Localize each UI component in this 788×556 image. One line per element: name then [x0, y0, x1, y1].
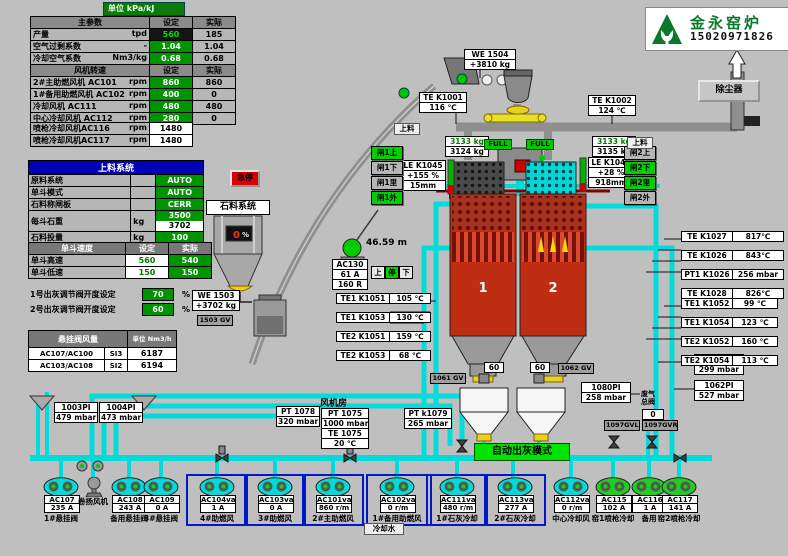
instrument-line: 124 ℃ — [588, 105, 636, 116]
measurement-row: TE2 K1054113 ℃ — [681, 356, 779, 375]
motor-label: 1#石灰冷却 — [424, 513, 490, 524]
param-actual: 0.68 — [193, 53, 236, 65]
flow-table: 悬挂阀风量单位 Nm3/hAC107/AC100SI36187AC103/AC1… — [28, 330, 177, 372]
conveyor — [484, 114, 546, 122]
fan-row: 冷却风机 AC111rpm480480 — [31, 101, 236, 113]
fan-room-label: 风机房 — [320, 396, 347, 409]
param-setpoint[interactable]: 0.68 — [150, 53, 193, 65]
instrument-line: 15mm — [400, 180, 446, 191]
param-setpoint[interactable]: 1.04 — [150, 41, 193, 53]
level-bar-right — [580, 158, 586, 192]
kiln-1-number: 1 — [478, 281, 487, 296]
measurement-tag: TE1 K1054 — [681, 317, 733, 328]
fan-unit: rpm — [129, 101, 147, 110]
instrument-line: PT k1079 — [404, 408, 452, 419]
main-table-title: 主参数 — [31, 17, 150, 29]
valve-setting-value[interactable]: 70 — [142, 288, 174, 301]
instrument-ac130: AC13061 A160 R — [332, 260, 368, 290]
measurement-row: TE2 K1051159 ℃ — [336, 332, 432, 351]
instrument-line: 3133 kg — [445, 136, 489, 147]
kiln-temps-right-b: TE1 K105299 ℃TE1 K1054123 ℃TE2 K1052160 … — [681, 299, 779, 375]
lance-flow-table: 悬挂阀风量单位 Nm3/hAC107/AC100SI36187AC103/AC1… — [28, 330, 177, 372]
valve-setting-unit: % — [182, 305, 190, 314]
param-unit: - — [144, 41, 147, 50]
flow-label: AC103/AC108 — [29, 360, 105, 372]
instrument-gv1503: 1503 GV — [197, 316, 233, 326]
ash-hopper-2 — [517, 374, 565, 441]
measurement-value: 113 ℃ — [732, 355, 778, 366]
feed-setpoint[interactable]: 3500 — [156, 211, 203, 221]
motor-value: 860 r/m — [316, 503, 352, 513]
feed-left-label: 上料 — [394, 123, 420, 135]
gun-fan-row: 喷枪冷却风机AC117rpm1480 — [31, 135, 193, 147]
main-params-table: 主参数设定实际产量tpd560185空气过剩系数-1.041.04冷却空气系数N… — [30, 16, 236, 125]
col-actual: 实际 — [193, 17, 236, 29]
instrument-line: +3810 kg — [464, 59, 516, 70]
instrument-line: TE K1001 — [419, 92, 467, 103]
param-label: 空气过剩系数- — [31, 41, 150, 53]
instrument-gv1061: 1061 GV — [430, 374, 466, 384]
instrument-line: 60 — [484, 362, 504, 373]
feed-label: 单斗模式 — [29, 187, 131, 199]
fan-label: 冷却风机 AC111rpm — [31, 101, 150, 113]
skip-speed-table: 单斗速度设定实际单斗高速560540单斗低速150150 — [28, 242, 212, 279]
feed-system-table: 上料系统原料系统AUTO单斗模式AUTO石料称闸板CERR每斗石重kg35003… — [28, 160, 204, 244]
motor-value: 277 A — [498, 503, 534, 513]
fan-unit: rpm — [129, 89, 147, 98]
param-actual: 185 — [193, 29, 236, 41]
instrument-line: 1000 mbar — [321, 418, 369, 429]
instrument-line: 1097GVR — [642, 420, 678, 431]
stone-bin-level: 0 — [233, 230, 240, 241]
speed-setpoint[interactable]: 150 — [126, 267, 169, 279]
fan-actual: 480 — [193, 101, 236, 113]
param-unit: tpd — [132, 29, 147, 38]
measurement-value: 123 ℃ — [732, 317, 778, 328]
instrument-line: 20 ℃ — [321, 438, 369, 449]
motor-label: 1#悬挂阀 — [28, 513, 94, 524]
fan-actual: 0 — [193, 89, 236, 101]
flow-tag: SI2 — [104, 360, 127, 372]
measurement-row: TE1 K1054123 ℃ — [681, 318, 779, 337]
instrument-te-k1002: TE K1002124 ℃ — [588, 96, 636, 116]
skip-bucket-full-icon — [399, 88, 409, 98]
motor-label: 2#主助燃风 — [300, 513, 366, 524]
estop-button[interactable]: 急停 — [230, 170, 260, 187]
col-set: 设定 — [150, 65, 193, 77]
flow-row: AC107/AC100SI36187 — [29, 348, 177, 360]
instrument-te-k1001: TE K1001116 ℃ — [419, 93, 467, 113]
instrument-weight-left: 3133 kg3124 kg — [445, 137, 489, 157]
fan-setpoint[interactable]: 400 — [150, 89, 193, 101]
logo-triangle-icon — [650, 12, 684, 46]
col-actual: 实际 — [169, 243, 212, 255]
stone-system-label: 石料系统 — [206, 200, 270, 215]
gun-fan-label: 喷枪冷却风机AC116rpm — [31, 123, 150, 135]
instrument-fan-stack: PT 10751000 mbarTE 107520 ℃ — [321, 409, 369, 449]
logo-title: 金永窑炉 — [690, 15, 774, 31]
speed-label: 单斗低速 — [29, 267, 126, 279]
fan-setpoint[interactable]: 480 — [150, 101, 193, 113]
feed-value[interactable]: CERR — [156, 199, 204, 211]
gate-button-gate1-out[interactable]: 闸1外 — [371, 191, 403, 205]
kiln-temps-right-a: TE K1027817℃TE K1026843℃PT1 K1026256 mba… — [681, 232, 785, 308]
valve-setting-unit: % — [182, 290, 190, 299]
feed-value[interactable]: AUTO — [156, 187, 204, 199]
speed-actual: 540 — [169, 255, 212, 267]
instrument-line: 479 mbar — [54, 412, 98, 423]
speed-row: 单斗低速150150 — [29, 267, 212, 279]
fan-table-title: 风机转速 — [31, 65, 150, 77]
gun-fan-row: 喷枪冷却风机AC116rpm1480 — [31, 123, 193, 135]
speed-table-title: 单斗速度 — [29, 243, 126, 255]
feed-right-label: 上料 — [627, 137, 653, 149]
hoist-button-2[interactable]: 下 — [399, 266, 413, 279]
full-right-label: FULL — [526, 139, 554, 150]
measurement-row: TE1 K105299 ℃ — [681, 299, 779, 318]
ash-valve-settings: 1号出灰调节阀开度设定70%2号出灰调节阀开度设定60% — [30, 287, 190, 317]
auto-discharge-button[interactable]: 自动出灰模式 — [474, 443, 570, 461]
instrument-line: 473 mbar — [99, 412, 143, 423]
measurement-value: 817℃ — [732, 231, 784, 242]
motor-value: 1 A — [200, 503, 236, 513]
feed-label: 原料系统 — [29, 175, 131, 187]
measurement-row: TE K1027817℃ — [681, 232, 785, 251]
param-actual: 1.04 — [193, 41, 236, 53]
gun-fan-value: 1480 — [150, 123, 193, 135]
gun-fan-table: 喷枪冷却风机AC116rpm1480喷枪冷却风机AC117rpm1480 — [30, 122, 193, 147]
dust-collector-button[interactable]: 除尘器 — [698, 80, 760, 102]
fan-setpoint[interactable]: 860 — [150, 77, 193, 89]
instrument-line: 116 ℃ — [419, 102, 467, 113]
measurement-tag: PT1 K1026 — [681, 269, 733, 280]
instrument-gate60b: 60 — [530, 363, 550, 373]
fan-row: 2#主助燃风机 AC101rpm860860 — [31, 77, 236, 89]
charging-hopper — [504, 76, 532, 103]
measurement-row: TE1 K1051105 ℃ — [336, 294, 432, 313]
instrument-ptk1079: PT k1079265 mbar — [404, 409, 452, 429]
feed-value[interactable]: 35003702 — [156, 211, 204, 232]
main-params: 主参数设定实际产量tpd560185空气过剩系数-1.041.04冷却空气系数N… — [30, 16, 236, 125]
col-actual: 实际 — [193, 65, 236, 77]
gate-button-gate2-in[interactable]: 闸2里 — [624, 176, 656, 190]
instrument-line: 320 mbar — [276, 416, 320, 427]
feed-label: 每斗石重 — [29, 211, 131, 232]
valve-setting-label: 2号出灰调节阀开度设定 — [30, 304, 142, 315]
instrument-line: 527 mbar — [694, 390, 744, 401]
feed-row: 每斗石重kg35003702 — [29, 211, 204, 232]
kiln-shaft-1 — [450, 162, 516, 382]
instrument-line: 1061 GV — [430, 373, 466, 384]
instrument-we1504: WE 1504+3810 kg — [464, 50, 516, 70]
measurement-value: 843℃ — [732, 250, 784, 261]
feed-table: 上料系统原料系统AUTO单斗模式AUTO石料称闸板CERR每斗石重kg35003… — [28, 160, 204, 244]
motor-label: 3#助燃风 — [242, 513, 308, 524]
speed-table: 单斗速度设定实际单斗高速560540单斗低速150150 — [28, 242, 212, 279]
measurement-value: 256 mbar — [732, 269, 784, 280]
company-logo: 金永窑炉 15020971826 — [645, 7, 788, 51]
instrument-le-k1045: LE K1045+155 %15mm — [400, 161, 446, 191]
fan-actual: 860 — [193, 77, 236, 89]
instrument-line: WE 1504 — [464, 49, 516, 60]
measurement-value: 130 ℃ — [389, 312, 431, 323]
kiln-shaft-2 — [520, 162, 586, 382]
height-label: 46.59 m — [366, 238, 407, 248]
waste2-label: 总阀 — [641, 397, 655, 407]
instrument-waste-pos: 0 — [642, 410, 664, 420]
fan-label: 2#主助燃风机 AC101rpm — [31, 77, 150, 89]
measurement-row: TE1 K1053130 ℃ — [336, 313, 432, 332]
measurement-tag: TE1 K1052 — [681, 298, 733, 309]
feed-unit — [131, 187, 156, 199]
speed-actual: 150 — [169, 267, 212, 279]
feed-actual: 3702 — [156, 221, 203, 231]
speed-setpoint[interactable]: 560 — [126, 255, 169, 267]
motor-label: 4#助燃风 — [184, 513, 250, 524]
fan-unit: rpm — [129, 77, 147, 86]
flow-unit-header: 单位 Nm3/h — [128, 331, 177, 348]
instrument-gvl: 1097GVL — [604, 421, 640, 431]
instrument-pt1078: PT 1078320 mbar — [276, 407, 320, 427]
instrument-line: 3124 kg — [445, 146, 489, 157]
motor-value: 0 A — [258, 503, 294, 513]
instrument-line: 0 — [642, 409, 664, 420]
motor-value: 102 A — [596, 503, 632, 513]
param-row: 产量tpd560185 — [31, 29, 236, 41]
feed-label: 石料称闸板 — [29, 199, 131, 211]
measurement-tag: TE1 K1053 — [336, 312, 390, 323]
motor-value: 0 A — [144, 503, 180, 513]
speed-row: 单斗高速560540 — [29, 255, 212, 267]
motor-value: 141 A — [662, 503, 698, 513]
valve-setting-row: 1号出灰调节阀开度设定70% — [30, 287, 190, 302]
kiln-2-number: 2 — [548, 281, 557, 296]
measurement-tag: TE K1026 — [681, 250, 733, 261]
feed-row: 原料系统AUTO — [29, 175, 204, 187]
measurement-tag: TE2 K1053 — [336, 350, 390, 361]
feed-row: 单斗模式AUTO — [29, 187, 204, 199]
instrument-line: 258 mbar — [581, 392, 631, 403]
col-set: 设定 — [126, 243, 169, 255]
measurement-row: TE2 K1052160 ℃ — [681, 337, 779, 356]
instrument-line: 265 mbar — [404, 418, 452, 429]
hoist-button-1[interactable]: 停 — [385, 266, 399, 279]
instrument-line: 160 R — [332, 279, 368, 290]
measurement-value: 99 ℃ — [732, 298, 778, 309]
duct-bracket — [744, 116, 760, 126]
measurement-value: 68 ℃ — [389, 350, 431, 361]
logo-phone: 15020971826 — [690, 31, 774, 43]
motor-value: 0 r/m — [380, 503, 416, 513]
instrument-line: AC130 — [332, 259, 368, 270]
hoist-button-0[interactable]: 上 — [371, 266, 385, 279]
col-set: 设定 — [150, 17, 193, 29]
fan-unit: rpm — [129, 113, 147, 122]
motor-value: 243 A — [112, 503, 148, 513]
gate-button-gate2-down[interactable]: 闸2下 — [624, 161, 656, 175]
ash-hopper-1 — [460, 374, 508, 441]
instrument-line: LE K1045 — [400, 160, 446, 171]
feed-unit — [131, 199, 156, 211]
flow-row: AC103/AC108SI26194 — [29, 360, 177, 372]
motor-label: 窑2喷枪冷却 — [646, 513, 712, 524]
flow-table-title: 悬挂阀风量 — [29, 331, 128, 348]
motor-value: 0 r/m — [554, 503, 590, 513]
instrument-gvr: 1097GVR — [642, 421, 678, 431]
measurement-tag: TE1 K1051 — [336, 293, 390, 304]
feed-value[interactable]: AUTO — [156, 175, 204, 187]
level-bar-left — [448, 160, 454, 194]
measurement-tag: TE2 K1051 — [336, 331, 390, 342]
instrument-line: PT 1078 — [276, 406, 320, 417]
hoist-drive — [341, 210, 378, 263]
measurement-row: TE2 K105368 ℃ — [336, 351, 432, 370]
flow-value: 6187 — [128, 348, 177, 360]
flow-value: 6194 — [128, 360, 177, 372]
gun-fan-unit: rpm — [129, 135, 147, 144]
feed-row: 石料称闸板CERR — [29, 199, 204, 211]
unit-banner: 单位 kPa/kJ — [103, 2, 185, 16]
param-label: 冷却空气系数Nm3/kg — [31, 53, 150, 65]
measurement-value: 160 ℃ — [732, 336, 778, 347]
instrument-line: 1503 GV — [197, 315, 233, 326]
fan-actual: 0 — [193, 113, 236, 125]
measurement-value: 105 ℃ — [389, 293, 431, 304]
measurement-value: 159 ℃ — [389, 331, 431, 342]
flow-tag: SI3 — [104, 348, 127, 360]
param-row: 冷却空气系数Nm3/kg0.680.68 — [31, 53, 236, 65]
skip-bucket-full-icon — [457, 74, 467, 84]
gun-fan-unit: rpm — [129, 123, 147, 132]
stone-bin-unit: % — [242, 231, 249, 239]
measurement-row: TE K1026843℃ — [681, 251, 785, 270]
measurement-tag: TE2 K1052 — [681, 336, 733, 347]
speed-label: 单斗高速 — [29, 255, 126, 267]
valve-setting-value[interactable]: 60 — [142, 303, 174, 316]
instrument-line: TE K1002 — [588, 95, 636, 106]
full-left-label: FULL — [484, 139, 512, 150]
instrument-line: +3702 kg — [192, 300, 240, 311]
gate-button-gate1-up[interactable]: 闸1上 — [371, 146, 403, 160]
instrument-line: WE 1503 — [192, 290, 240, 301]
gun-fan-rows: 喷枪冷却风机AC116rpm1480喷枪冷却风机AC117rpm1480 — [30, 122, 193, 147]
instrument-line: 60 — [530, 362, 550, 373]
param-setpoint[interactable]: 560 — [150, 29, 193, 41]
instrument-pi1004: 1004PI473 mbar — [99, 403, 143, 423]
instrument-pi1080: 1080PI258 mbar — [581, 383, 631, 403]
fan-row: 1#备用助燃风机 AC102rpm4000 — [31, 89, 236, 101]
feed-table-title: 上料系统 — [29, 161, 204, 175]
flow-label: AC107/AC100 — [29, 348, 105, 360]
hmi-kiln-screen: 1 2 — [0, 0, 788, 556]
weigh-tank-1503 — [254, 295, 286, 336]
gate-button-gate2-out[interactable]: 闸2外 — [624, 191, 656, 205]
measurement-row: PT1 K1026256 mbar — [681, 270, 785, 289]
param-row: 空气过剩系数-1.041.04 — [31, 41, 236, 53]
instrument-gv1062: 1062 GV — [558, 364, 594, 374]
instrument-gate60a: 60 — [484, 363, 504, 373]
measurement-tag: TE K1027 — [681, 231, 733, 242]
instrument-line: PT 1075 — [321, 408, 369, 419]
instrument-line: 1062 GV — [558, 363, 594, 374]
gate-button-gate1-down[interactable]: 闸1下 — [371, 161, 403, 175]
feed-unit — [131, 175, 156, 187]
kiln-temps-left: TE1 K1051105 ℃TE1 K1053130 ℃TE2 K1051159… — [336, 294, 432, 370]
feed-unit: kg — [131, 211, 156, 232]
instrument-line: 1097GVL — [604, 420, 640, 431]
param-unit: Nm3/kg — [112, 53, 147, 62]
gate-button-gate1-in[interactable]: 闸1里 — [371, 176, 403, 190]
fan-label: 1#备用助燃风机 AC102rpm — [31, 89, 150, 101]
instrument-pi1062: 1062PI527 mbar — [694, 381, 744, 401]
instrument-we1503: WE 1503+3702 kg — [192, 291, 240, 311]
instrument-pi1003: 1003PI479 mbar — [54, 403, 98, 423]
skip-bucket-icon — [482, 75, 492, 85]
measurement-tag: TE2 K1054 — [681, 355, 733, 366]
motor-value: 480 r/m — [440, 503, 476, 513]
valve-setting-label: 1号出灰调节阀开度设定 — [30, 289, 142, 300]
param-label: 产量tpd — [31, 29, 150, 41]
instrument-line: TE 1075 — [321, 428, 369, 439]
gun-fan-label: 喷枪冷却风机AC117rpm — [31, 135, 150, 147]
valve-setting-row: 2号出灰调节阀开度设定60% — [30, 302, 190, 317]
cooling-water-label: 冷却水 — [364, 523, 404, 535]
gun-fan-value: 1480 — [150, 135, 193, 147]
